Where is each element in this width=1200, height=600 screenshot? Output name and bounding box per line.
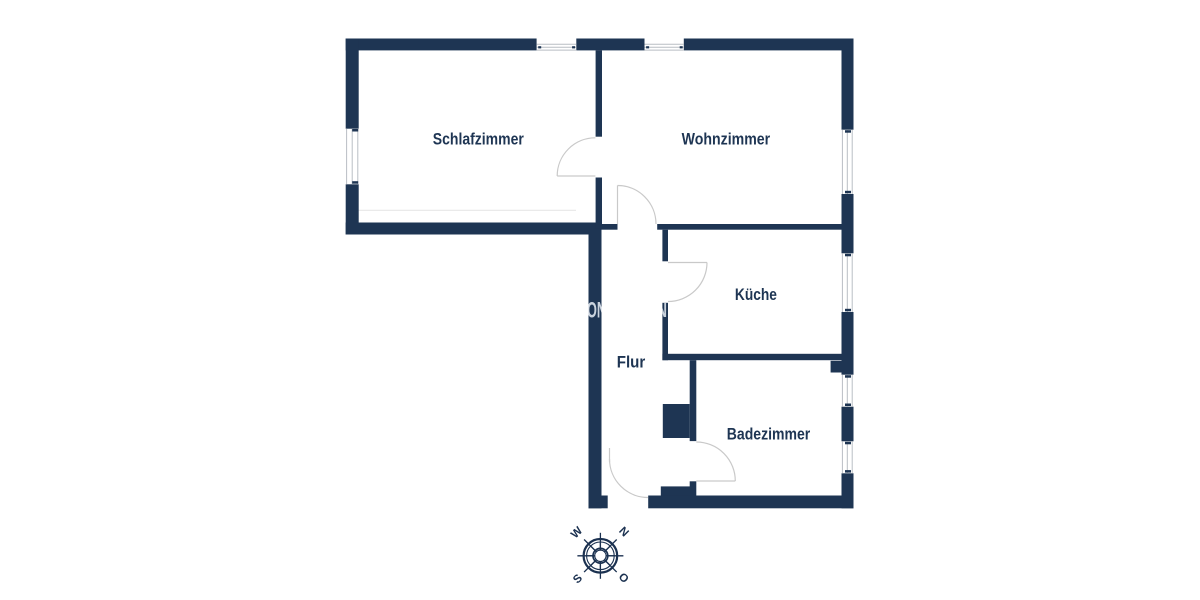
svg-text:Badezimmer: Badezimmer (727, 424, 811, 443)
svg-text:Flur: Flur (617, 353, 646, 372)
svg-text:Schlafzimmer: Schlafzimmer (433, 130, 524, 149)
svg-text:Küche: Küche (735, 285, 777, 304)
svg-text:Wohnzimmer: Wohnzimmer (682, 130, 771, 149)
